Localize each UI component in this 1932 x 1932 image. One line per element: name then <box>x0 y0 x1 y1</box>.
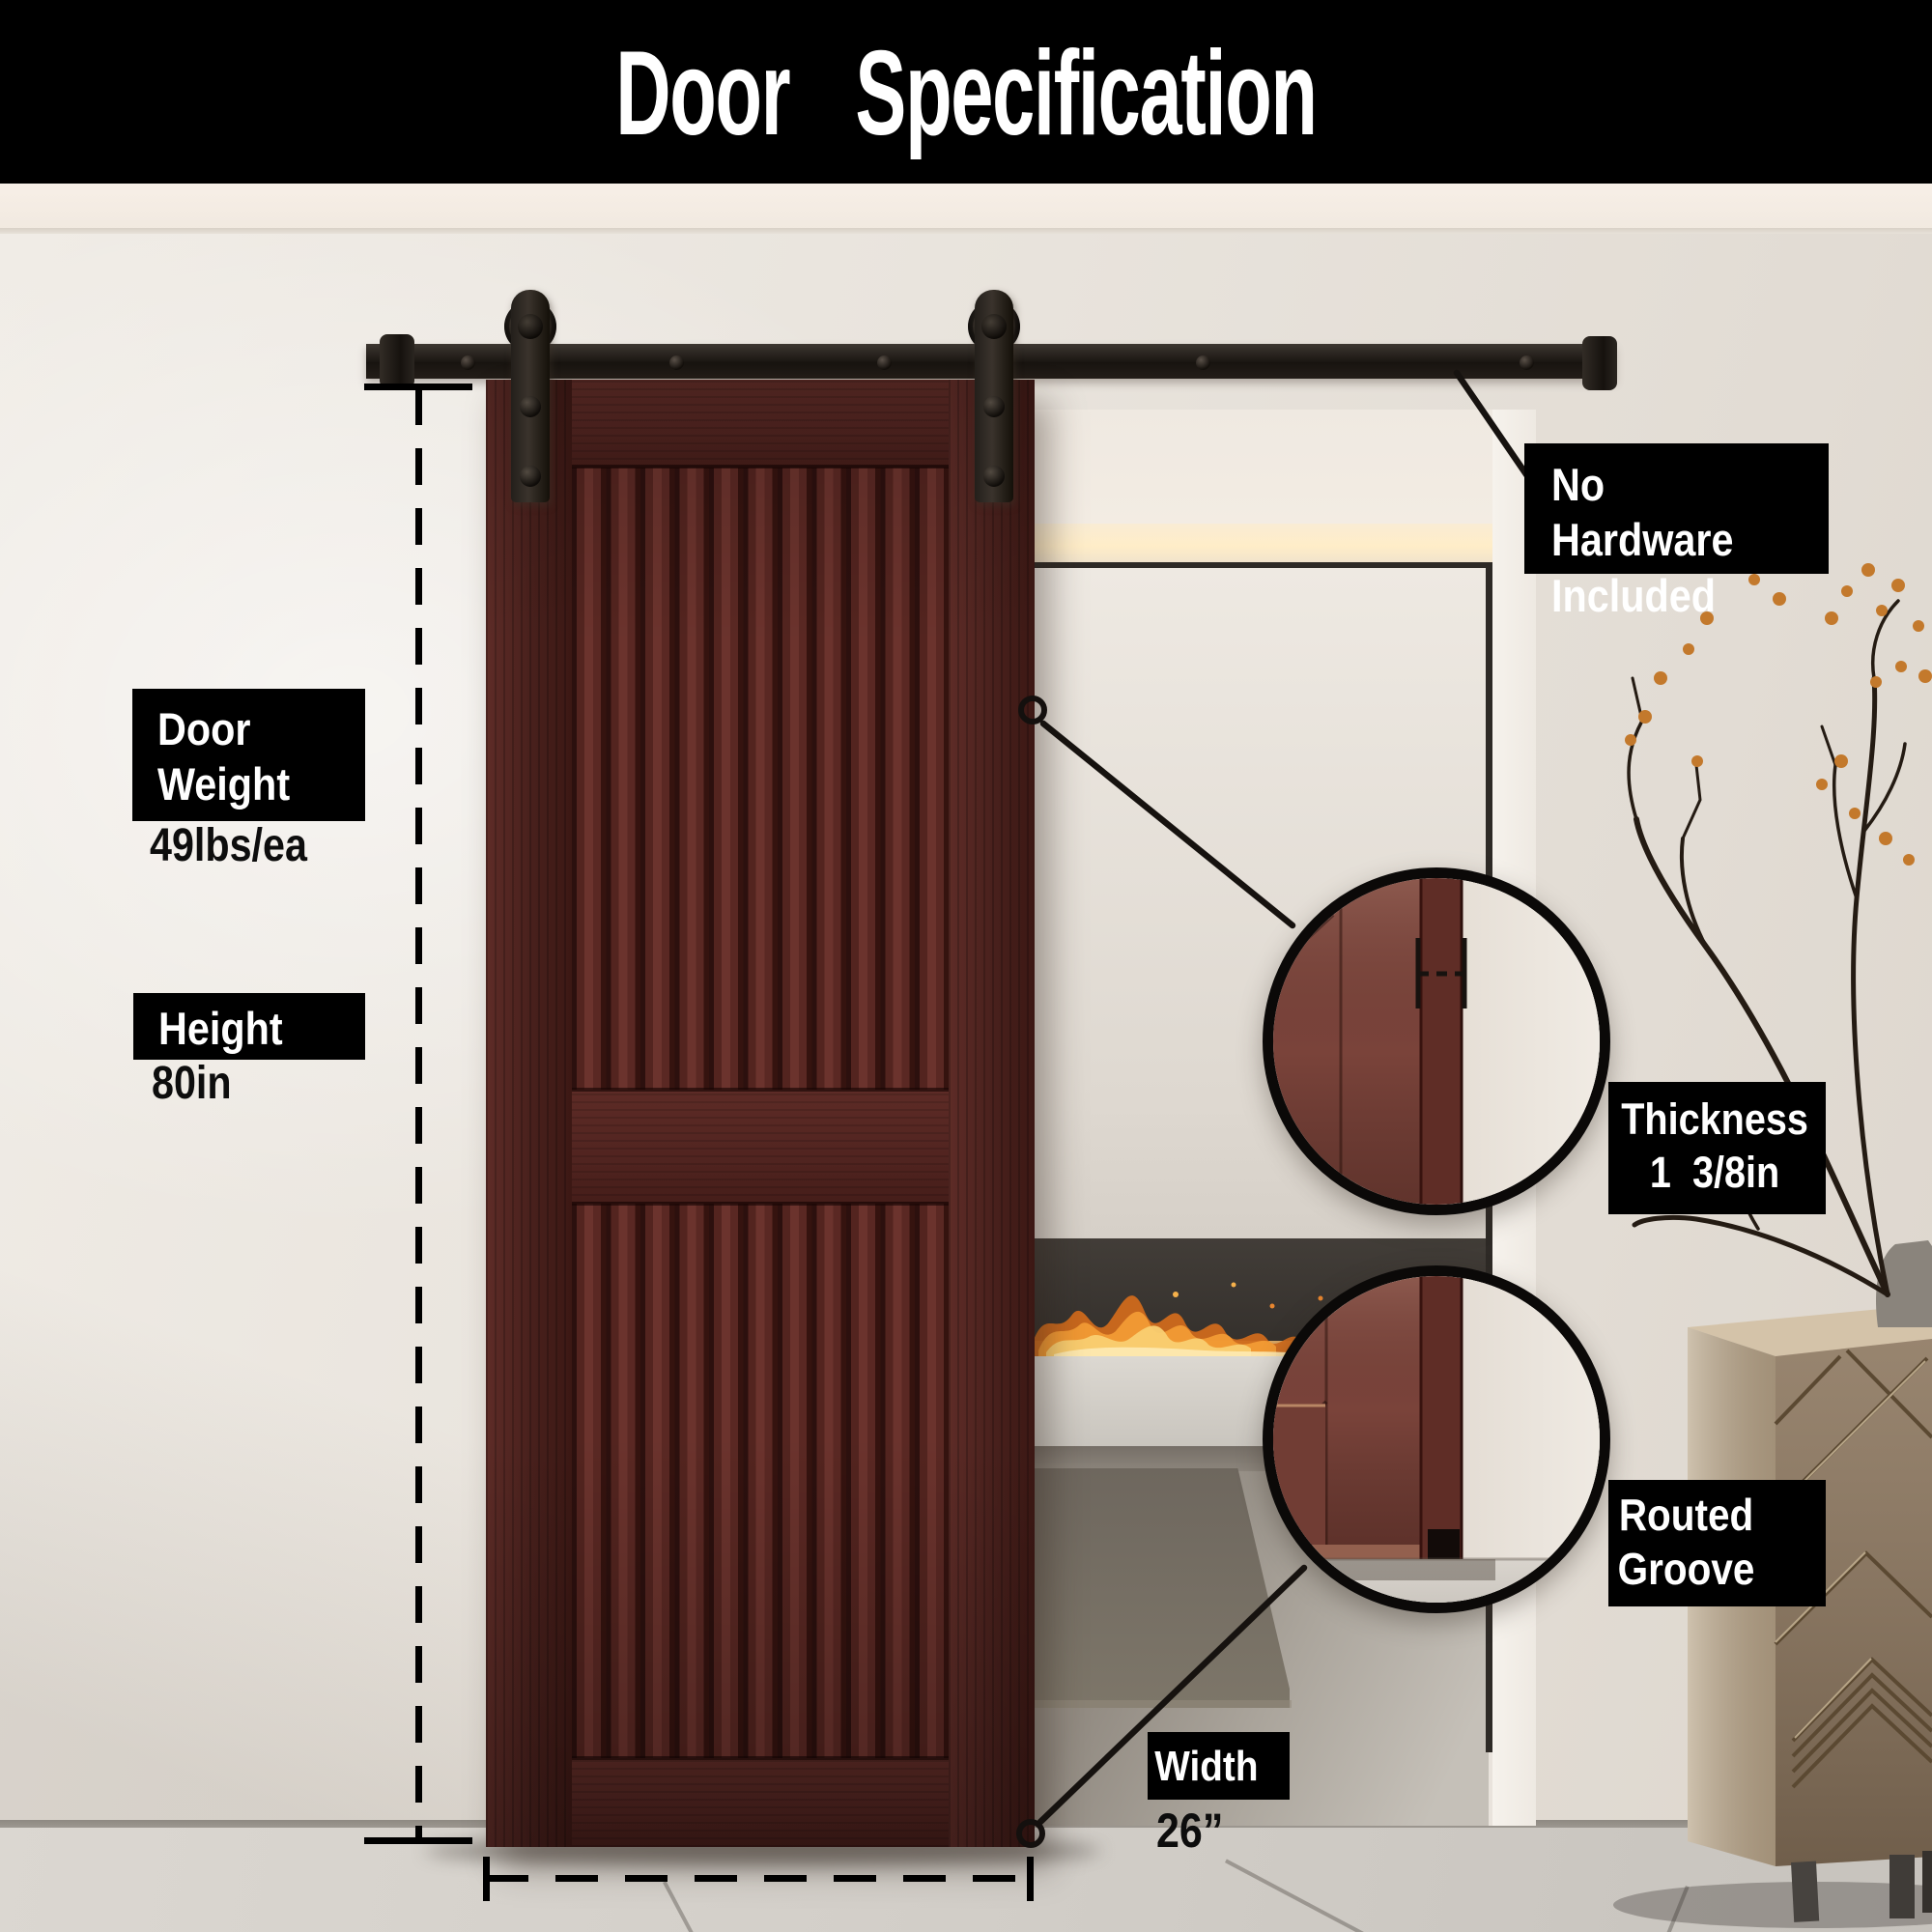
hanger-bolt <box>520 466 541 487</box>
height-value: 80in <box>152 1057 232 1110</box>
width-dim-dashed-line <box>486 1875 1031 1882</box>
routed-groove-text: Routed Groove <box>1618 1488 1755 1596</box>
doorway-cove-light <box>1031 524 1536 564</box>
width-label: Width <box>1148 1732 1290 1800</box>
no-hardware-text: No Hardware Included <box>1551 457 1796 623</box>
width-dim-right-tick <box>1027 1857 1034 1901</box>
rail-screw <box>669 355 684 370</box>
rail-stopper-left <box>380 334 414 388</box>
hanger-bolt <box>983 466 1005 487</box>
hanger-bolt <box>518 314 543 339</box>
rail-screw <box>461 355 475 370</box>
height-dim-dashed-line <box>415 388 422 1837</box>
barn-door <box>486 380 1035 1847</box>
product-spec-image: No Hardware Included Door Weight 49lbs/e… <box>0 0 1932 1932</box>
no-hardware-label: No Hardware Included <box>1524 443 1829 574</box>
rail-screw <box>1196 355 1210 370</box>
width-value: 26” <box>1156 1803 1223 1859</box>
height-dim-bottom-tick <box>364 1837 472 1844</box>
routed-groove-label: Routed Groove <box>1608 1480 1826 1606</box>
wall-shadow <box>0 1207 502 1826</box>
hanger-bolt <box>983 396 1005 417</box>
ceiling <box>0 184 1932 230</box>
hanger-bolt <box>981 314 1007 339</box>
width-dim-left-tick <box>483 1857 490 1901</box>
callout-marker-icon <box>1018 696 1047 724</box>
height-label: Height <box>133 993 365 1060</box>
rail-screw <box>1520 355 1534 370</box>
door-weight-value: 49lbs/ea <box>150 819 307 872</box>
rail-screw <box>877 355 892 370</box>
zoom-lens-thickness-icon <box>1263 867 1610 1215</box>
thickness-label: Thickness 1 3/8in <box>1608 1082 1826 1214</box>
zoom-lens-routed-groove-icon <box>1263 1265 1610 1613</box>
hanger-bolt <box>520 396 541 417</box>
shadow-edge <box>1031 1700 1292 1708</box>
thickness-text: Thickness 1 3/8in <box>1621 1094 1808 1200</box>
door-weight-label: Door Weight <box>132 689 365 821</box>
rail-stopper-right <box>1582 336 1617 390</box>
doorway-recess-upper <box>1031 410 1536 524</box>
door-shading <box>486 380 1035 1847</box>
height-text: Height <box>158 1001 283 1056</box>
callout-marker-icon <box>1016 1819 1045 1848</box>
page-title: Door Specification <box>348 25 1584 162</box>
door-weight-text: Door Weight <box>157 701 290 812</box>
width-text: Width <box>1154 1741 1258 1793</box>
